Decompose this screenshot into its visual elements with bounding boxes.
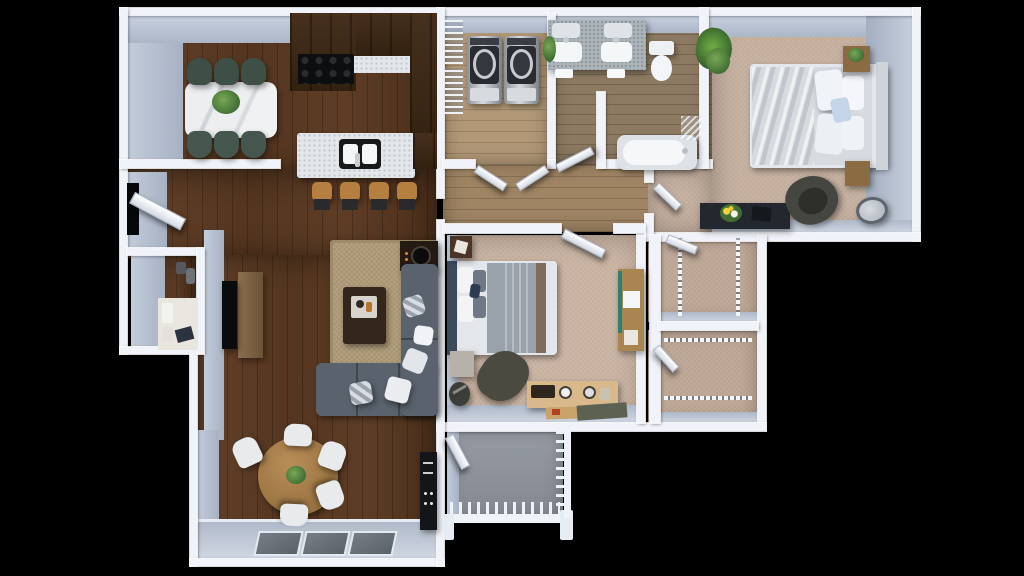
bedroom2-console-clock-1 [559, 386, 572, 399]
bedroom2-headboard [447, 261, 457, 355]
window-pane-2 [300, 531, 350, 556]
bath-faucet-left [563, 37, 569, 43]
wall-wing-south [437, 423, 766, 431]
kitchen-cooktop [298, 54, 354, 84]
dining-chair-5 [214, 131, 239, 158]
wall-entry-north [120, 160, 280, 168]
cabinet-handle-1 [423, 462, 433, 464]
wall-closets-east [758, 235, 766, 430]
kitchen-island-end-cabinet [413, 133, 437, 169]
sofa-pillow-2 [348, 380, 373, 405]
bath-faucet-right [613, 37, 619, 43]
dining-chair-2 [214, 58, 239, 85]
washer-base [470, 88, 499, 101]
bath-sink-right [601, 42, 632, 62]
kitchen-faucet [355, 153, 360, 167]
bedroom2-pillow-2 [458, 296, 474, 322]
bedroom2-shelf-teal-strip [618, 271, 622, 333]
bedroom2-pillow-accent [469, 283, 481, 298]
bedroom1-headboard [876, 62, 888, 170]
bedroom1-desk-flowers [720, 204, 742, 222]
bedroom2-blanket-edge [536, 263, 546, 353]
bath-towel-left [555, 69, 573, 78]
dining-chair-4 [187, 131, 212, 158]
dining-chair-3 [241, 58, 266, 85]
bathtub-faucet [682, 148, 688, 154]
wall-bedroom2-west [437, 220, 444, 566]
wall-closet-divider [658, 322, 758, 330]
window-pane-1 [253, 531, 303, 556]
dryer-base [507, 88, 536, 101]
dryer-control-panel [507, 38, 536, 45]
balcony-rail-post-left [444, 514, 454, 540]
wall-pantry-east [197, 248, 204, 354]
bedroom1-desk-laptop [751, 206, 771, 222]
coffee-table-tray [351, 296, 377, 318]
nook-plant [286, 466, 306, 484]
coffee-table-decor-2 [366, 302, 372, 312]
bar-stool-3-frame [371, 199, 387, 210]
bedroom2-pillow-4 [473, 296, 486, 318]
bar-stool-1-frame [314, 199, 330, 210]
bedroom2-basket [449, 382, 470, 406]
bedroom1-nightstand-plant [848, 48, 864, 62]
laundry-wire-shelf-1 [445, 20, 463, 64]
bedroom2-tray-item [552, 409, 560, 415]
bedroom2-shelf-panel-2 [624, 330, 638, 345]
wall-kitchen-east [437, 8, 444, 198]
shower-glass [681, 116, 701, 140]
cabinet-handle-2 [423, 472, 433, 474]
washer-control-panel [470, 38, 499, 45]
balcony-rail-east [564, 428, 571, 518]
nook-chair-2 [283, 423, 312, 446]
bedroom2-console-radio [531, 385, 555, 398]
floor-plan-render [0, 0, 1024, 576]
wall-entry-pantry [127, 248, 202, 255]
bedroom2-nightstand-2 [450, 351, 474, 377]
entry-doorway-gap [127, 183, 139, 235]
kitchen-back-counter [354, 56, 412, 73]
bedroom1-nightstand-2 [845, 161, 870, 186]
bedroom2-console-frame [599, 387, 611, 401]
wallface-closet1-south [656, 312, 758, 322]
balcony-rail-south [444, 514, 572, 523]
dining-chair-1 [187, 58, 212, 85]
wall-bedroom2-north-b [614, 224, 645, 233]
toilet-bowl [651, 55, 672, 81]
dining-centerpiece-plant [212, 90, 240, 114]
closet2-rail-top [664, 338, 752, 342]
wall-north [120, 8, 920, 15]
wallface-living-west [204, 230, 224, 440]
wallface-closet2-south [656, 412, 758, 423]
window-pane-3 [347, 531, 397, 556]
bedroom2-duvet-fold [505, 263, 531, 353]
wall-nook-south [190, 559, 444, 566]
bedroom2-console-clock-2 [583, 386, 596, 399]
bedroom2-shelf-panel-1 [623, 291, 640, 308]
closet1-rail-right [736, 238, 740, 316]
pantry-box-1 [162, 303, 173, 323]
closet1-rail-left [678, 238, 682, 316]
laundry-wire-shelf-2 [445, 68, 463, 114]
closet2-rail-bottom [664, 396, 752, 400]
sofa-pillow-5 [413, 325, 434, 346]
bedroom1-corner-plant-b [706, 48, 730, 74]
cabinet-knob-1 [424, 492, 427, 495]
wall-west [120, 8, 127, 354]
bar-stool-2-frame [342, 199, 358, 210]
bath-mirror-reflection-left [552, 23, 580, 38]
media-accent-dot-2 [405, 258, 408, 261]
wall-bedroom2-north-a [443, 224, 561, 233]
pantry-bottle [186, 268, 195, 284]
wallface-nook-west [197, 430, 219, 525]
wall-nook-west [190, 347, 197, 566]
wallface-nook-sill [197, 519, 437, 522]
bedroom2-floor-tray [546, 406, 578, 419]
pantry-box-2 [162, 327, 173, 341]
bedroom1-duvet-wrinkles [752, 67, 814, 165]
wall-bedroom1-south [645, 233, 920, 241]
bedroom1-desk [700, 203, 790, 229]
pantry-shelf-item [176, 262, 186, 274]
wall-east [913, 8, 920, 241]
nook-chair-5 [279, 503, 308, 526]
bathtub-basin [623, 140, 685, 165]
bath-mirror-reflection-right [604, 23, 632, 38]
tv-media-panel [238, 272, 263, 358]
dining-chair-6 [241, 131, 266, 158]
kitchen-sink-basin-right [362, 144, 377, 164]
cabinet-knob-3 [424, 502, 427, 505]
floor-closet2-carpet [648, 330, 758, 423]
cabinet-knob-2 [430, 492, 433, 495]
coffee-table-decor-1 [356, 300, 364, 308]
media-speaker-circle [411, 246, 431, 266]
bath-vanity-plant [543, 36, 556, 62]
dryer-drum [510, 49, 533, 79]
wallface-dining-north [127, 13, 292, 43]
wall-laundry-south-stub [443, 160, 475, 168]
tv-screen [222, 281, 237, 349]
bath-towel-right [607, 69, 625, 78]
floor-closet1-carpet [648, 235, 758, 322]
wall-bath-partition [597, 92, 605, 168]
media-accent-dot-1 [405, 252, 408, 255]
cabinet-knob-4 [430, 502, 433, 505]
toilet-tank [649, 41, 674, 55]
washer-drum [473, 49, 496, 79]
bar-stool-4-frame [399, 199, 415, 210]
